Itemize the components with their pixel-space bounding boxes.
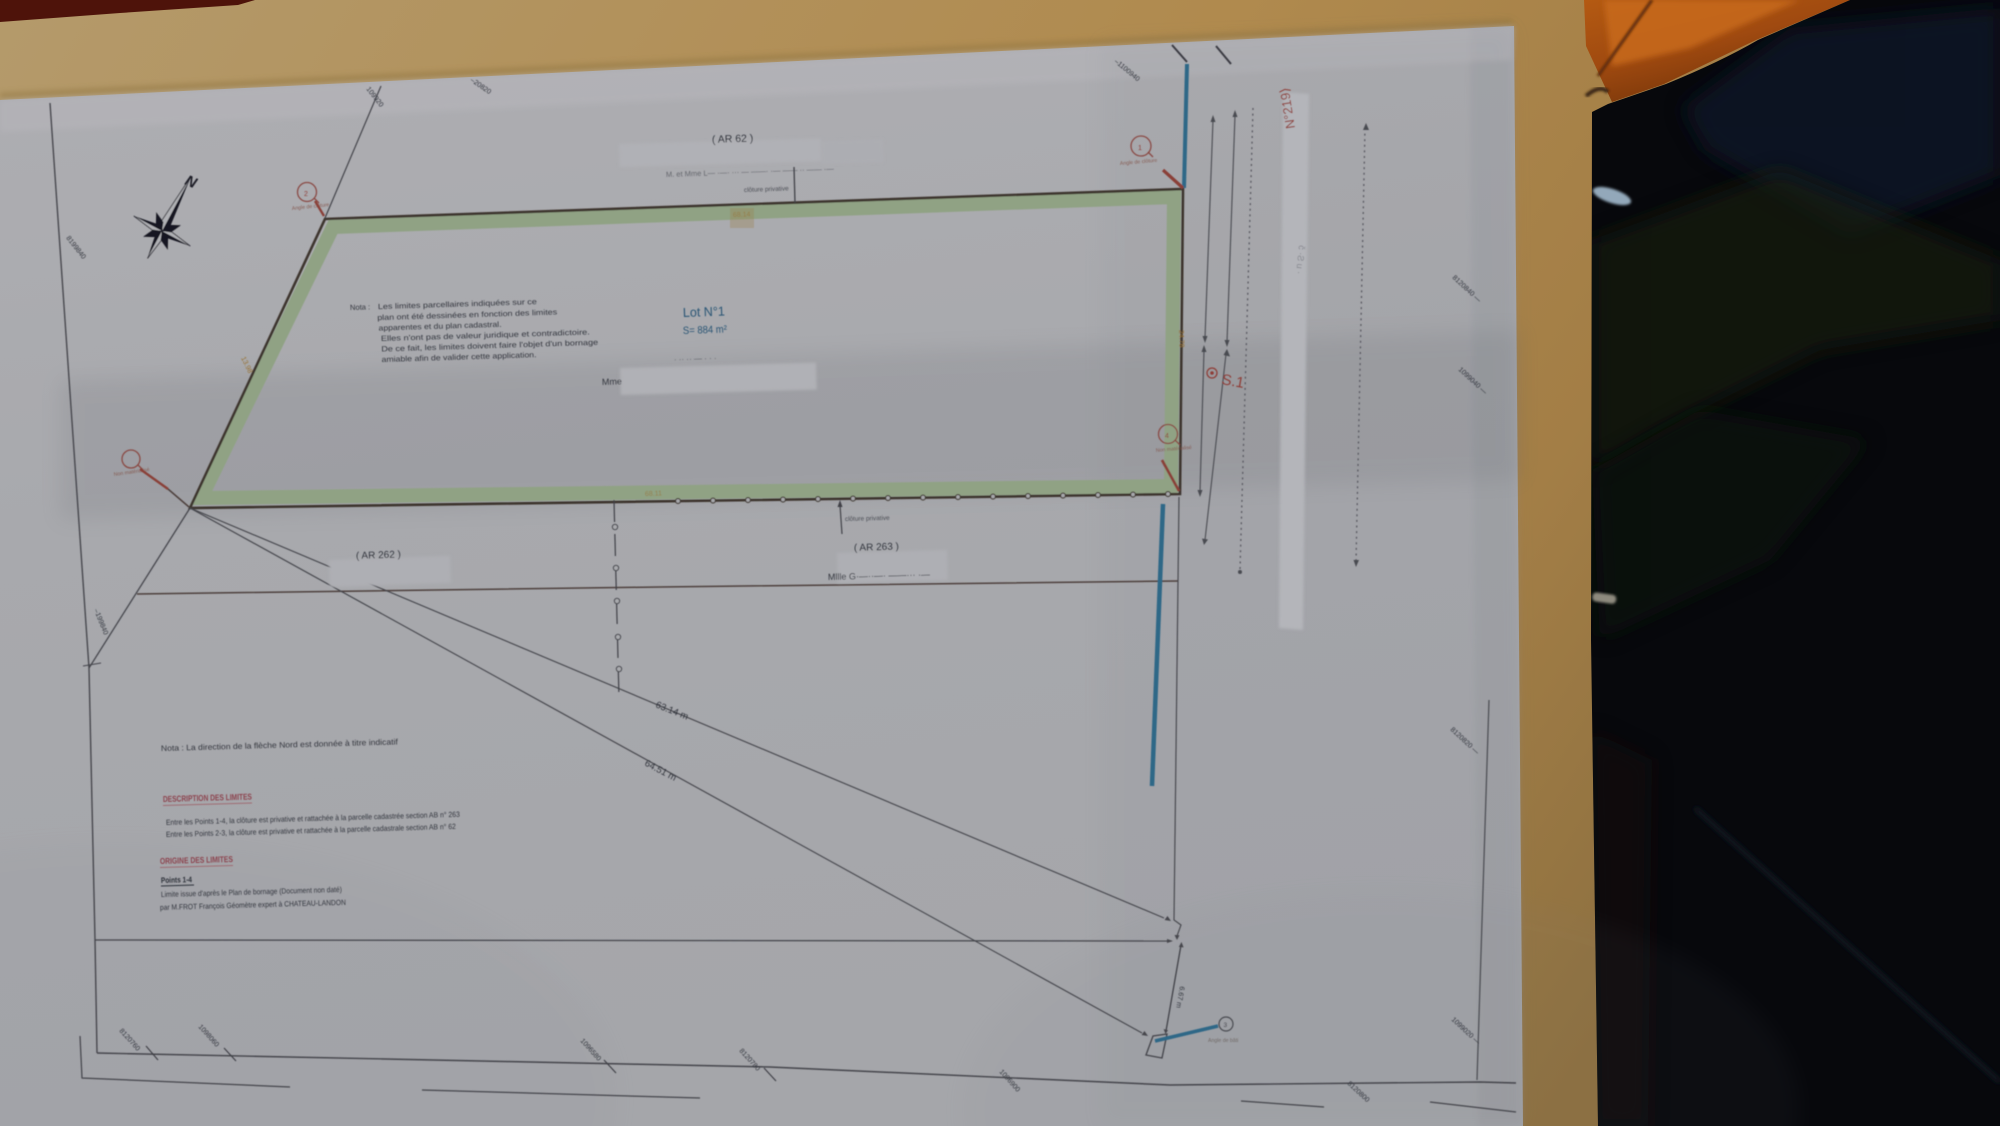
svg-text:S= 884 m²: S= 884 m²	[683, 323, 728, 337]
svg-text:Nota :: Nota :	[350, 302, 371, 312]
svg-text:3: 3	[1224, 1022, 1228, 1029]
svg-text:68.11: 68.11	[645, 490, 662, 498]
svg-text:2: 2	[304, 191, 308, 198]
svg-text:Points 1-4: Points 1-4	[161, 875, 193, 885]
svg-text:· ·· ·· — · · ·: · ·· ·· — · · ·	[674, 354, 717, 364]
svg-text:( AR 263 ): ( AR 263 )	[854, 541, 899, 554]
svg-text:4: 4	[1165, 433, 1169, 440]
svg-text:24.78: 24.78	[1177, 330, 1185, 348]
svg-text:1: 1	[1138, 145, 1142, 152]
svg-text:( AR 262 ): ( AR 262 )	[356, 549, 401, 562]
svg-text:Mme: Mme	[602, 376, 622, 387]
svg-text:68.14: 68.14	[733, 211, 751, 219]
svg-text:clôture privative: clôture privative	[845, 515, 890, 523]
svg-text:Lot N°1: Lot N°1	[683, 304, 725, 320]
svg-text:Angle de bâti: Angle de bâti	[1208, 1038, 1238, 1044]
svg-text:ORIGINE DES LIMITES: ORIGINE DES LIMITES	[160, 854, 233, 866]
svg-text:( AR 62 ): ( AR 62 )	[712, 133, 754, 146]
